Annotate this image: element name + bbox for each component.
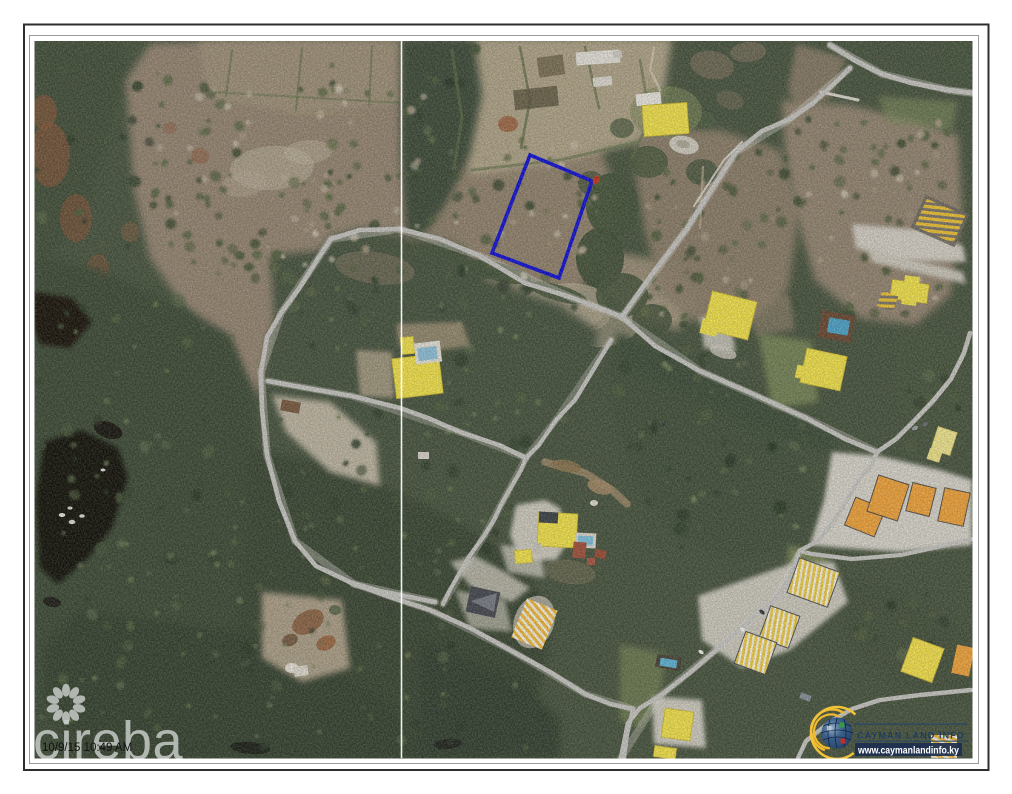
- svg-text:CAYMAN LAND INFO: CAYMAN LAND INFO: [857, 731, 965, 742]
- svg-text:10/9/15 10:49 AM: 10/9/15 10:49 AM: [42, 742, 132, 754]
- svg-text:www.caymanlandinfo.ky: www.caymanlandinfo.ky: [857, 746, 959, 757]
